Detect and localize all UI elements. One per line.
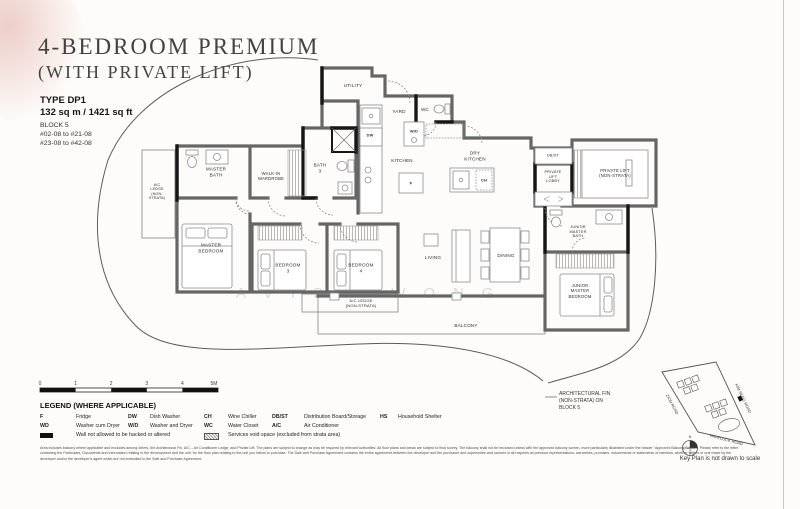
architectural-fin-label: ARCHITECTURAL FIN (NON-STRATA) ON BLOCK …	[559, 391, 610, 411]
room-label-ac-ledge-left: A/C LEDGE (NON- STRATA)	[149, 183, 165, 201]
north-label: N	[689, 435, 692, 439]
legend-abbr: WD	[40, 423, 49, 429]
legend-label: Washer and Dryer	[150, 423, 193, 429]
legend-label: Household Shelter	[398, 414, 442, 420]
legend-abbr: W/D	[128, 423, 138, 429]
wardrobes	[258, 150, 614, 268]
walk-in-wardrobe-hatch	[288, 150, 306, 196]
key-plan-caption: Key Plan is not drawn to scale	[652, 456, 788, 462]
legend-abbr: DB/ST	[272, 414, 288, 420]
site-boundary	[662, 362, 755, 445]
lift-door-hatch	[574, 150, 582, 198]
scale-tick-1: 1	[74, 381, 77, 387]
road-label-havelock: HAVELOCK ROAD	[709, 433, 743, 447]
room-label-bath-3: BATH 3	[314, 162, 327, 173]
legend-abbr: DW	[128, 414, 137, 420]
bath3-fixtures	[337, 160, 354, 194]
room-label-private-lift-lobby: PRIVATE LIFT LOBBY	[544, 170, 561, 184]
building-cluster-1	[677, 375, 702, 396]
room-label-wc: WC	[421, 107, 429, 113]
legend-label: Fridge	[76, 414, 91, 420]
room-label-dining: DINING	[497, 253, 514, 259]
scale-tick-5: 5M	[211, 381, 218, 387]
room-label-yard: YARD	[392, 109, 405, 115]
room-label-master-bedroom: MASTER BEDROOM	[198, 242, 223, 253]
legend-abbr: F	[40, 414, 43, 420]
scale-tick-2: 2	[110, 381, 113, 387]
appliance-label-wd: W/D	[410, 130, 418, 135]
road-label-zion: ZION ROAD	[665, 393, 680, 415]
room-label-bedroom-4: BEDROOM 4	[348, 262, 373, 273]
legend-abbr: CH	[204, 414, 212, 420]
floorplan-page: { "header": { "title_line1": "4-BEDROOM …	[0, 0, 800, 509]
void-swatch	[204, 433, 219, 440]
junior-master-wardrobe	[556, 254, 614, 268]
legend-wall-note: Wall not allowed to be hacked or altered	[76, 432, 170, 438]
wall-swatch	[40, 433, 53, 438]
legend-label: Washer cum Dryer	[76, 423, 120, 429]
dry-kitchen-island	[450, 168, 494, 192]
legend-abbr: WC	[204, 423, 213, 429]
room-label-utility: UTILITY	[344, 83, 363, 89]
room-label-private-lift: PRIVATE LIFT (NON-STRATA)	[599, 168, 631, 179]
room-label-ac-ledge-bottom: A/C LEDGE (NON-STRATA)	[346, 298, 376, 308]
legend-void-note: Services void space (excluded from strat…	[228, 432, 340, 438]
landscape-blob	[717, 416, 741, 433]
room-label-walk-in-wardrobe: WALK-IN WARDROBE	[258, 171, 284, 182]
lobby-sliding-door	[535, 192, 572, 206]
room-label-master-bath: MASTER BATH	[206, 166, 226, 177]
disclaimer-text: Area includes balcony where applicable a…	[40, 446, 745, 462]
building-cluster-2	[705, 399, 730, 420]
legend-abbr: A/C	[272, 423, 281, 429]
road-label-right: KIM SENG ROAD	[734, 383, 753, 414]
master-bath-fixtures	[186, 150, 228, 168]
room-label-db-st: DB/ST	[547, 154, 559, 159]
legend-label: Wine Chiller	[228, 414, 257, 420]
room-label-balcony: BALCONY	[454, 323, 477, 329]
legend-title: LEGEND (WHERE APPLICABLE)	[40, 401, 156, 410]
legend-abbr: HS	[380, 414, 387, 420]
room-label-junior-master-bedroom: JUNIOR MASTER BEDROOM	[568, 283, 591, 299]
appliance-label-wine-chiller: CH	[481, 178, 487, 183]
appliance-label-dw: DW	[367, 134, 374, 139]
wc-fixtures	[434, 104, 450, 114]
legend-label: Water Closet	[228, 423, 258, 429]
legend-label: Distribution Board/Storage	[304, 414, 366, 420]
scale-tick-3: 3	[145, 381, 148, 387]
room-label-kitchen: KITCHEN	[391, 158, 413, 164]
appliance-label-fridge: F	[410, 181, 413, 186]
room-label-bedroom-3: BEDROOM 3	[275, 262, 300, 273]
room-label-living: LIVING	[425, 255, 441, 261]
scale-bar: 0 1 2 3 4 5M	[39, 381, 218, 392]
master-bed	[182, 224, 232, 288]
room-label-junior-master-bath: JUNIOR MASTER BATH	[569, 225, 586, 239]
services-void-shaft	[332, 128, 356, 152]
key-plan: ZION ROAD HAVELOCK ROAD KIM SENG ROAD N	[662, 362, 755, 456]
legend-label: Air Conditioner	[304, 423, 339, 429]
room-label-dry-kitchen: DRY KITCHEN	[464, 150, 486, 161]
scale-tick-0: 0	[39, 381, 42, 387]
legend-label: Dish Washer	[150, 414, 180, 420]
bedroom3-wardrobe	[258, 226, 302, 240]
scale-tick-4: 4	[181, 381, 184, 387]
